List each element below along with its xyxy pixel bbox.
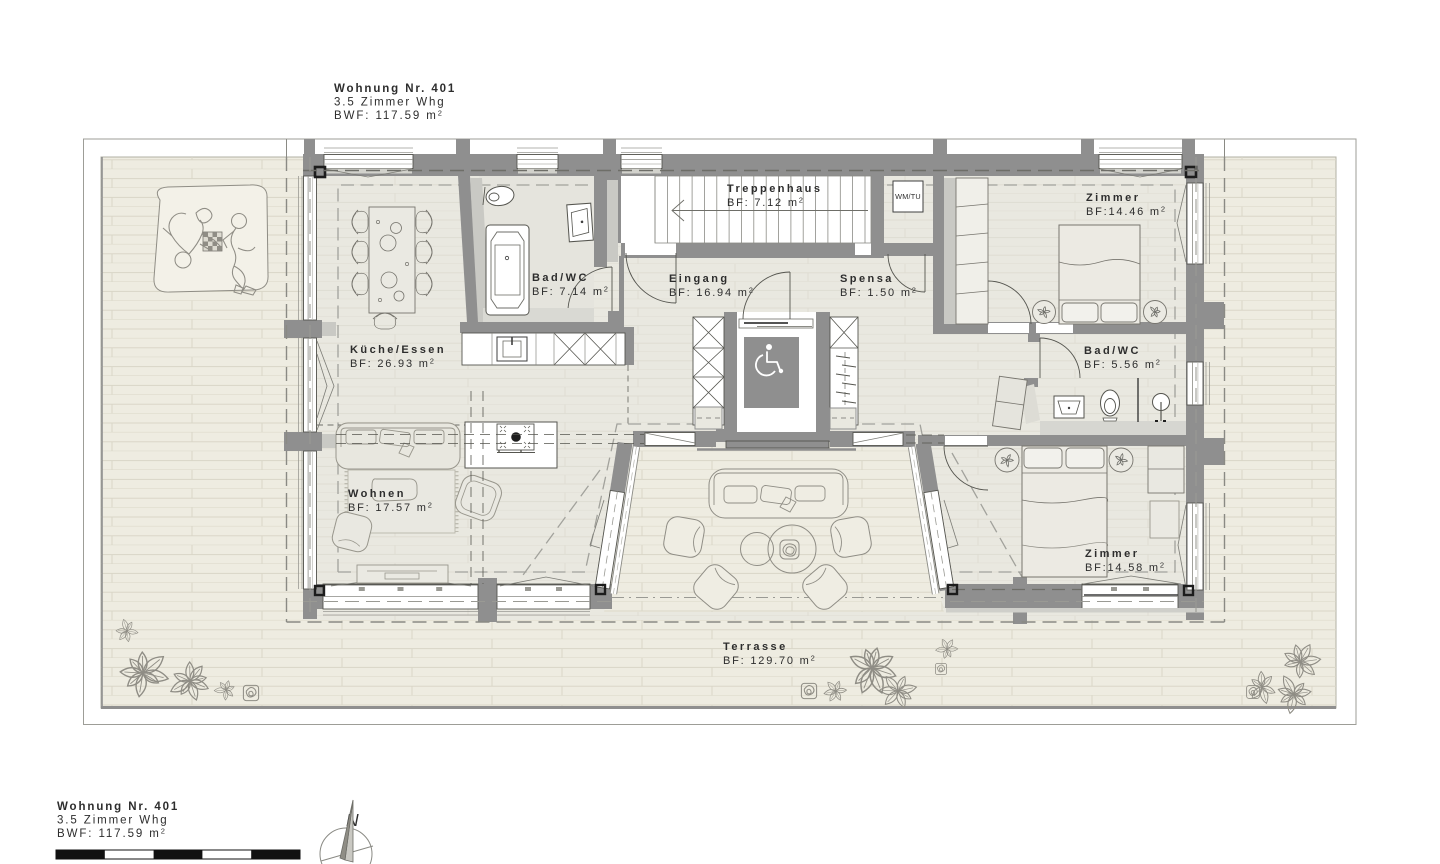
- svg-text:BF: 129.70 m2: BF: 129.70 m2: [723, 654, 817, 668]
- svg-text:Spensa: Spensa: [840, 273, 894, 285]
- svg-text:BF: 26.93 m2: BF: 26.93 m2: [350, 357, 436, 371]
- svg-text:BF: 1.50 m2: BF: 1.50 m2: [840, 286, 918, 300]
- svg-text:BF:14.46 m2: BF:14.46 m2: [1086, 205, 1167, 219]
- svg-text:BF: 7.12 m2: BF: 7.12 m2: [727, 196, 805, 210]
- svg-text:Zimmer: Zimmer: [1086, 192, 1140, 204]
- svg-text:BF: 16.94 m2: BF: 16.94 m2: [669, 286, 755, 300]
- svg-text:Wohnung Nr. 401: Wohnung Nr. 401: [57, 801, 179, 813]
- svg-text:BF: 7.14 m2: BF: 7.14 m2: [532, 285, 610, 299]
- svg-text:BF:14.58 m2: BF:14.58 m2: [1085, 561, 1166, 575]
- svg-text:Bad/WC: Bad/WC: [1084, 345, 1141, 357]
- svg-text:BWF: 117.59 m2: BWF: 117.59 m2: [57, 827, 167, 841]
- svg-text:Küche/Essen: Küche/Essen: [350, 344, 446, 356]
- svg-text:BWF: 117.59 m2: BWF: 117.59 m2: [334, 109, 444, 123]
- svg-text:3.5 Zimmer Whg: 3.5 Zimmer Whg: [334, 97, 446, 109]
- svg-text:Wohnung Nr. 401: Wohnung Nr. 401: [334, 83, 456, 95]
- svg-text:Wohnen: Wohnen: [348, 488, 406, 500]
- svg-text:Terrasse: Terrasse: [723, 641, 788, 653]
- svg-text:Zimmer: Zimmer: [1085, 548, 1139, 560]
- svg-text:Bad/WC: Bad/WC: [532, 272, 589, 284]
- svg-text:BF: 5.56 m2: BF: 5.56 m2: [1084, 358, 1162, 372]
- svg-text:Eingang: Eingang: [669, 273, 730, 285]
- svg-text:Treppenhaus: Treppenhaus: [727, 183, 822, 195]
- svg-text:3.5 Zimmer Whg: 3.5 Zimmer Whg: [57, 815, 169, 827]
- svg-text:WM/TU: WM/TU: [895, 192, 921, 201]
- svg-text:BF: 17.57 m2: BF: 17.57 m2: [348, 501, 434, 515]
